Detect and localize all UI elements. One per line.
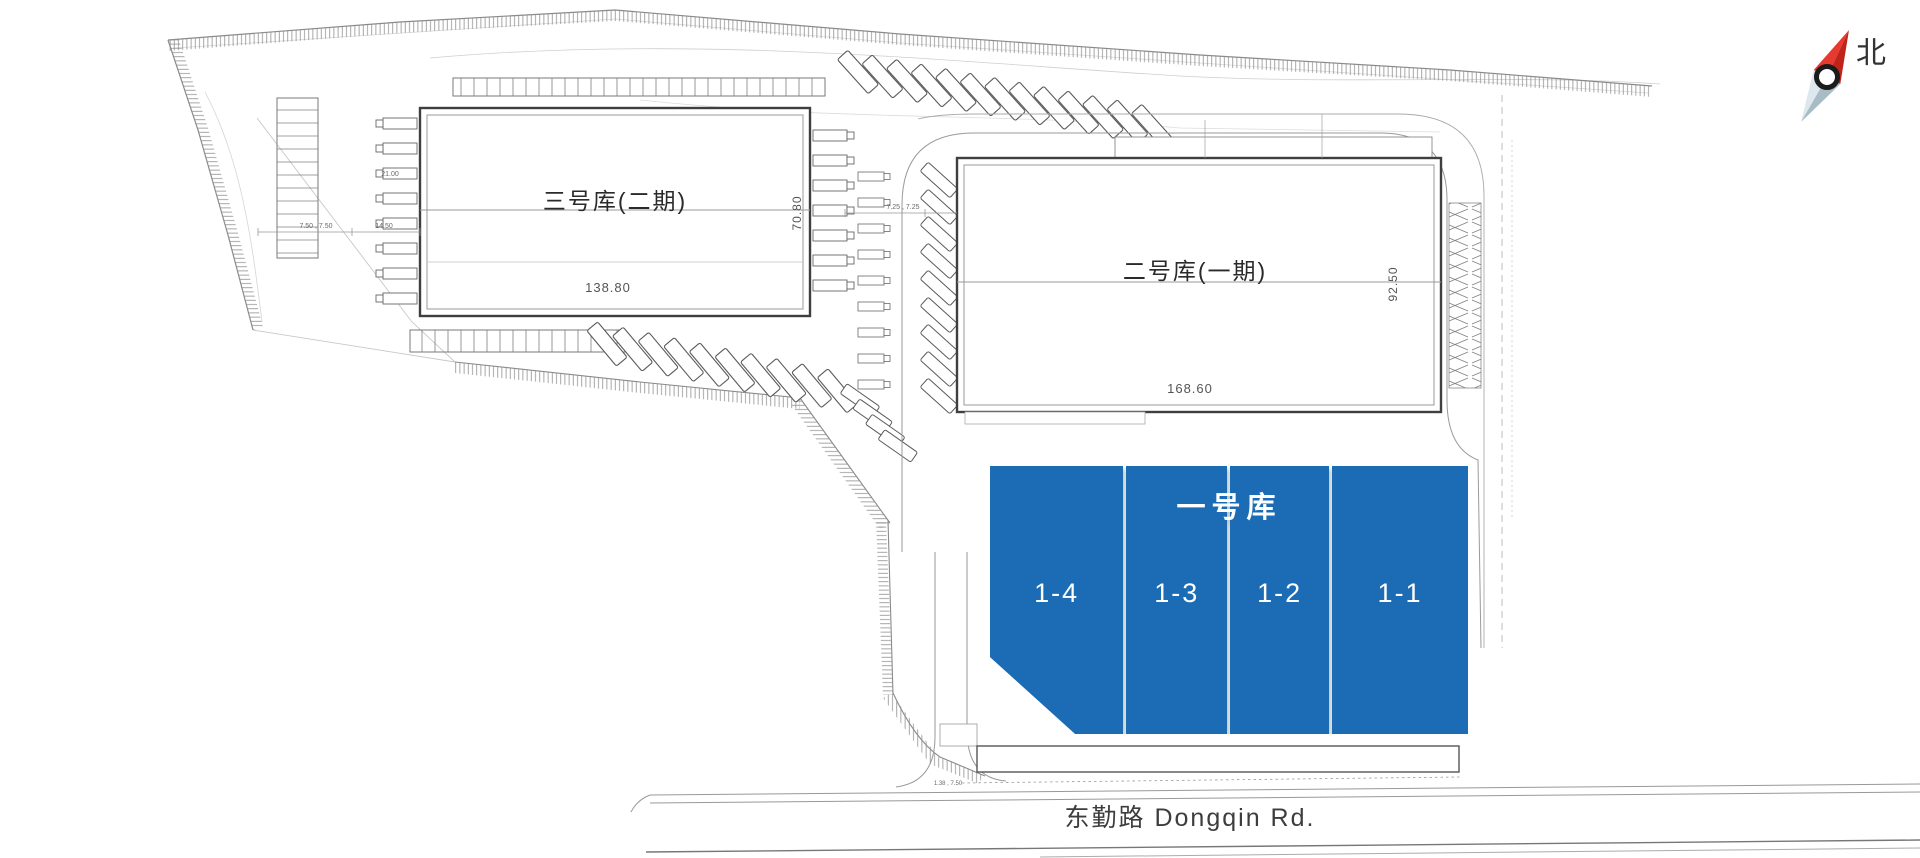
unit-1-2[interactable]: 1-2 bbox=[1230, 466, 1329, 734]
warehouse-3-width-dim: 138.80 bbox=[558, 280, 658, 295]
site-plan-drawing bbox=[0, 0, 1920, 858]
warehouse-2-name: 二号库(一期) bbox=[1060, 252, 1330, 286]
site-plan-page: 一号库 1-4 1-3 1-2 1-1 三号库(二期) 138.80 70.80… bbox=[0, 0, 1920, 858]
compass-north-icon bbox=[1801, 30, 1849, 122]
dim-label-21: 21.00 bbox=[368, 171, 412, 178]
unit-1-2-label: 1-2 bbox=[1257, 578, 1302, 609]
unit-1-3-label: 1-3 bbox=[1154, 578, 1199, 609]
dim-label-south: 1.38 , 7.50 bbox=[913, 781, 983, 787]
warehouse-1-building: 一号库 1-4 1-3 1-2 1-1 bbox=[990, 466, 1468, 734]
warehouse-3-name: 三号库(二期) bbox=[470, 182, 760, 216]
warehouse-3-depth-dim: 70.80 bbox=[790, 178, 804, 248]
warehouse-2-width-dim: 168.60 bbox=[1140, 381, 1240, 396]
unit-1-4-label: 1-4 bbox=[1034, 578, 1079, 609]
unit-1-3[interactable]: 1-3 bbox=[1126, 466, 1227, 734]
road-name: 东勤路 Dongqin Rd. bbox=[1035, 798, 1345, 834]
dim-label-750: 7.50 , 7.50 bbox=[281, 223, 351, 230]
unit-1-1-label: 1-1 bbox=[1378, 578, 1423, 609]
north-label: 北 bbox=[1856, 28, 1886, 72]
dim-label-725: 7.25 , 7.25 bbox=[868, 204, 938, 211]
warehouse-2-depth-dim: 92.50 bbox=[1386, 249, 1400, 319]
dim-label-1450: 14.50 bbox=[362, 223, 406, 230]
unit-1-1[interactable]: 1-1 bbox=[1332, 466, 1468, 734]
